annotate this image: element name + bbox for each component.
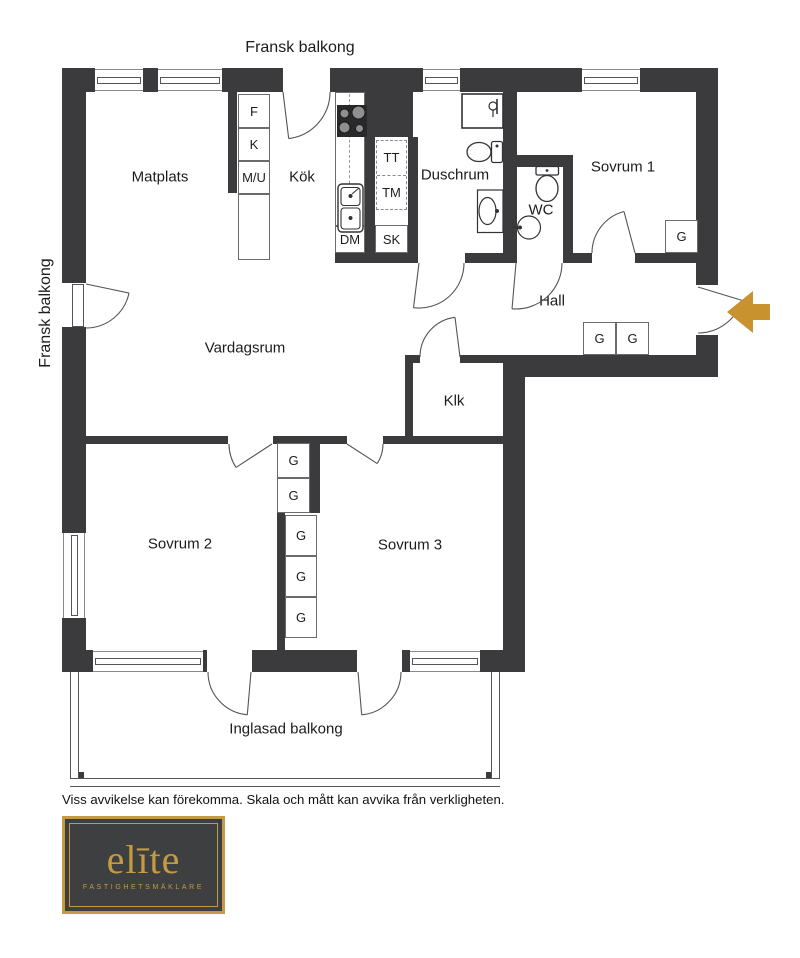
- room-label-sovrum2: Sovrum 2: [148, 536, 212, 553]
- fridge-cabinet: F: [238, 94, 270, 128]
- room-label-matplats: Matplats: [132, 169, 189, 186]
- wall-segment: [503, 92, 517, 263]
- wardrobe-box: G: [665, 220, 698, 253]
- floor-plan: Fransk balkong Fransk balkong: [0, 0, 800, 958]
- elite-logo-brand: elīte: [107, 840, 181, 880]
- toilet-icon: [467, 142, 503, 163]
- room-label-duschrum: Duschrum: [421, 167, 489, 184]
- room-label-hall: Hall: [539, 293, 565, 310]
- door-swing-duschrum: [414, 263, 465, 308]
- wall-segment: [310, 436, 320, 513]
- wall-segment: [252, 650, 357, 672]
- wall-segment: [402, 650, 410, 672]
- window-glass: [584, 77, 638, 84]
- wall-segment: [408, 137, 418, 253]
- door-swing-sovrum2: [229, 444, 272, 467]
- window: [63, 533, 85, 618]
- wall-segment: [480, 650, 525, 672]
- wall-segment: [460, 355, 503, 363]
- micro-oven-cabinet: M/U: [238, 161, 270, 194]
- disclaimer-text: Viss avvikelse kan förekomma. Skala och …: [62, 792, 504, 807]
- wardrobe-box: G: [285, 597, 317, 638]
- balcony-glazing: [70, 778, 500, 787]
- balcony-door-panel: [72, 284, 84, 327]
- room-label-klk: Klk: [444, 393, 465, 410]
- room-label-sovrum1: Sovrum 1: [591, 159, 655, 176]
- door-swing-sovrum3: [347, 444, 383, 464]
- wall-segment: [228, 92, 237, 193]
- balcony-glazing: [70, 672, 79, 782]
- wall-segment: [383, 436, 525, 444]
- cleaning-closet-box: SK: [375, 225, 408, 253]
- elite-logo-tagline: FASTIGHETSMÄKLARE: [83, 884, 204, 891]
- kitchen-counter: [335, 92, 365, 226]
- wall-segment: [277, 513, 285, 650]
- wall-segment: [503, 355, 718, 377]
- room-label-inglasad-balkong: Inglasad balkong: [229, 721, 342, 738]
- wall-segment: [405, 355, 420, 363]
- wardrobe-box: G: [616, 322, 649, 355]
- wall-segment: [143, 68, 158, 92]
- room-label-kok: Kök: [289, 169, 315, 186]
- wall-segment: [365, 92, 413, 137]
- wall-segment: [222, 68, 283, 92]
- wall-segment: [335, 253, 418, 263]
- wall-segment: [460, 68, 582, 92]
- wardrobe-box: G: [285, 515, 317, 556]
- laundry-appliance-box: TT TM: [376, 140, 407, 210]
- door-swing-kok-balcony: [283, 92, 330, 139]
- room-label-sovrum3: Sovrum 3: [378, 537, 442, 554]
- wall-segment: [405, 355, 413, 444]
- wardrobe-box: G: [277, 478, 310, 513]
- bathroom-sink-icon: [478, 190, 504, 233]
- wall-segment: [503, 377, 525, 672]
- window: [410, 651, 480, 672]
- window: [158, 69, 222, 91]
- wardrobe-box: G: [285, 556, 317, 597]
- top-balcony-title: Fransk balkong: [245, 39, 354, 57]
- door-swing-vardagsrum-balcony: [86, 284, 129, 328]
- wall-segment: [62, 68, 86, 283]
- left-balcony-title: Fransk balkong: [37, 258, 55, 367]
- room-label-vardagsrum: Vardagsrum: [205, 340, 286, 357]
- dishwasher-box: DM: [335, 226, 365, 253]
- wall-segment: [563, 155, 573, 263]
- wall-segment: [330, 68, 423, 92]
- door-swing-sovrum3-balcony: [358, 672, 401, 715]
- elite-logo-frame: elīte FASTIGHETSMÄKLARE: [69, 823, 218, 907]
- elite-logo: elīte FASTIGHETSMÄKLARE: [62, 816, 225, 914]
- wc-toilet-icon: [536, 167, 559, 202]
- window: [582, 69, 640, 91]
- window-glass: [97, 77, 141, 84]
- tumble-dryer-label: TT: [377, 141, 406, 176]
- wall-segment: [62, 327, 86, 533]
- window-glass: [95, 658, 201, 665]
- window: [423, 69, 460, 91]
- counter-centerline: [349, 94, 350, 224]
- window-glass: [425, 77, 458, 84]
- window-glass: [71, 535, 78, 616]
- door-swing-entrance: [698, 287, 742, 333]
- room-label-wc: WC: [529, 202, 554, 219]
- door-swing-sovrum1: [592, 212, 635, 254]
- shower-icon: [462, 94, 503, 128]
- entrance-arrow-icon: [727, 291, 770, 333]
- wardrobe-box: G: [277, 443, 310, 478]
- door-swing-sovrum2-balcony: [208, 672, 251, 715]
- window-glass: [160, 77, 220, 84]
- wall-segment: [635, 253, 718, 263]
- balcony-glazing: [491, 672, 500, 782]
- freezer-cabinet: K: [238, 128, 270, 161]
- window: [93, 651, 203, 672]
- window-glass: [412, 658, 478, 665]
- door-swing-klk: [420, 317, 460, 357]
- wall-segment: [62, 650, 93, 672]
- window: [95, 69, 143, 91]
- wardrobe-box: G: [583, 322, 616, 355]
- wall-segment: [203, 650, 207, 672]
- wall-segment: [365, 137, 375, 262]
- wall-segment: [86, 436, 228, 444]
- washing-machine-label: TM: [377, 176, 406, 210]
- kitchen-cabinet: [238, 194, 270, 260]
